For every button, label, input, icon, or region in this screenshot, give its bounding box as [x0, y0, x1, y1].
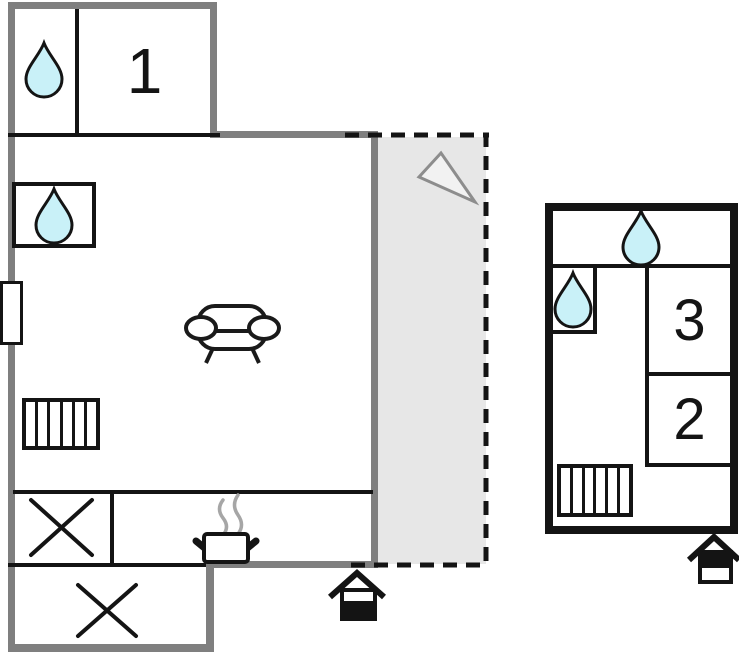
room-3-label: 3 — [649, 268, 730, 372]
steam-icon — [235, 495, 242, 534]
wall-annex-bottom — [8, 133, 220, 137]
pot-icon — [204, 534, 248, 562]
sofa-icon — [186, 306, 279, 363]
window-icon — [0, 281, 23, 345]
wall-annex-right — [210, 2, 217, 137]
wall-main-top-right — [210, 131, 378, 138]
wall-kitchen-box-right — [110, 490, 114, 567]
radiator-icon — [557, 464, 633, 517]
wall-rb-room2-bottom — [649, 463, 730, 467]
bathroom-box — [12, 182, 96, 248]
cross-mark — [78, 585, 136, 636]
wall-extension-right — [206, 565, 214, 652]
room-2-label: 2 — [649, 376, 730, 463]
radiator-icon — [22, 398, 100, 450]
entrance-house-icon — [689, 537, 739, 582]
terrace-area — [378, 137, 486, 564]
water-drop-icon — [26, 43, 62, 97]
wall-main-right — [371, 131, 378, 568]
steam-icon — [220, 500, 227, 535]
wall-kitchen-divider — [13, 490, 373, 494]
bathroom-box-right — [549, 264, 597, 334]
entrance-house-icon — [330, 573, 384, 619]
wall-main-bottom — [206, 561, 378, 568]
room-1-label: 1 — [79, 9, 210, 133]
wall-annex-top — [8, 2, 217, 9]
wall-annex-left — [8, 2, 15, 137]
wall-extension-bottom — [8, 644, 214, 652]
wall-extension-top — [8, 563, 206, 567]
cross-mark — [31, 500, 92, 555]
floorplan: 1 3 2 — [0, 0, 739, 652]
stove-icon — [196, 495, 256, 562]
